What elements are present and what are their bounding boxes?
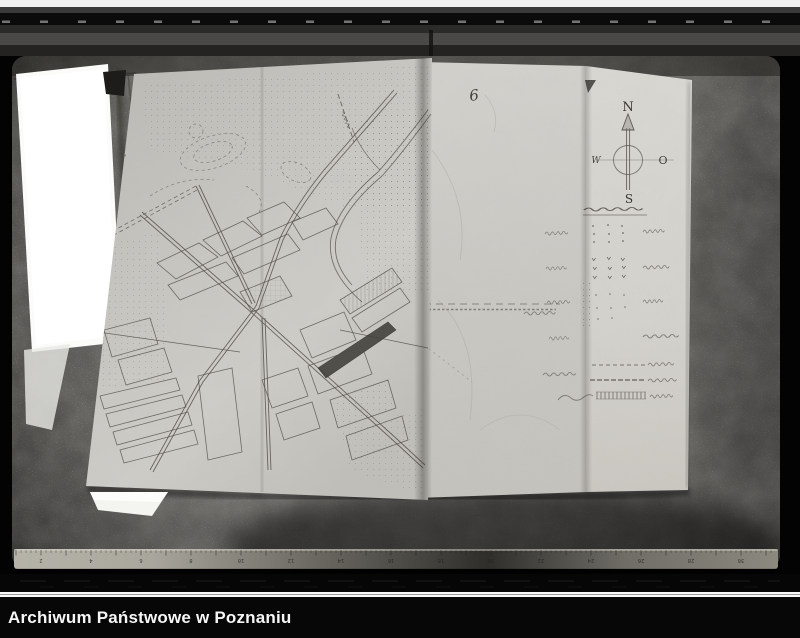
caption-bar: Archiwum Państwowe w Poznaniu xyxy=(0,597,800,638)
ruler-number: 6 xyxy=(139,557,142,563)
binder-clip xyxy=(103,70,126,96)
center-fold-crease xyxy=(414,58,432,500)
compass-east-label: O xyxy=(658,154,667,167)
top-white-strip xyxy=(0,0,800,7)
legend-symbol-railway xyxy=(596,392,646,399)
ruler-number: 14 xyxy=(337,557,344,563)
frame-glints xyxy=(0,19,800,23)
right-fold-crease xyxy=(580,66,592,492)
compass-south-label: S xyxy=(625,192,633,206)
ruler-number: 22 xyxy=(538,557,545,563)
map-sheet xyxy=(86,58,432,516)
lower-frame-band xyxy=(0,574,800,592)
ruler-number: 10 xyxy=(238,557,245,563)
ruler-number: 20 xyxy=(488,557,495,563)
ruler-number: 12 xyxy=(288,557,295,563)
frame-center-seam xyxy=(429,30,433,60)
ruler-shadow xyxy=(14,569,778,574)
compass-west-label: W xyxy=(591,156,601,166)
ruler: 24681012141618202224262830 xyxy=(14,549,778,574)
ruler-number: 18 xyxy=(438,557,445,563)
archive-photograph-viewer: 6 N O S W xyxy=(0,0,800,638)
ruler-number: 16 xyxy=(388,557,395,563)
separator-inner-line xyxy=(0,594,800,595)
ruler-number: 8 xyxy=(189,557,192,563)
compass-north-label: N xyxy=(622,100,633,115)
middle-page: 6 xyxy=(416,62,586,498)
ruler-number: 2 xyxy=(39,557,42,563)
ruler-number: 30 xyxy=(738,557,745,563)
archive-photo: 6 N O S W xyxy=(0,0,800,592)
ruler-number: 26 xyxy=(638,557,645,563)
caption-text: Archiwum Państwowe w Poznaniu xyxy=(0,608,292,628)
ruler-number: 28 xyxy=(688,557,695,563)
copy-stand-frame xyxy=(0,0,800,60)
ruler-number: 24 xyxy=(587,557,594,563)
